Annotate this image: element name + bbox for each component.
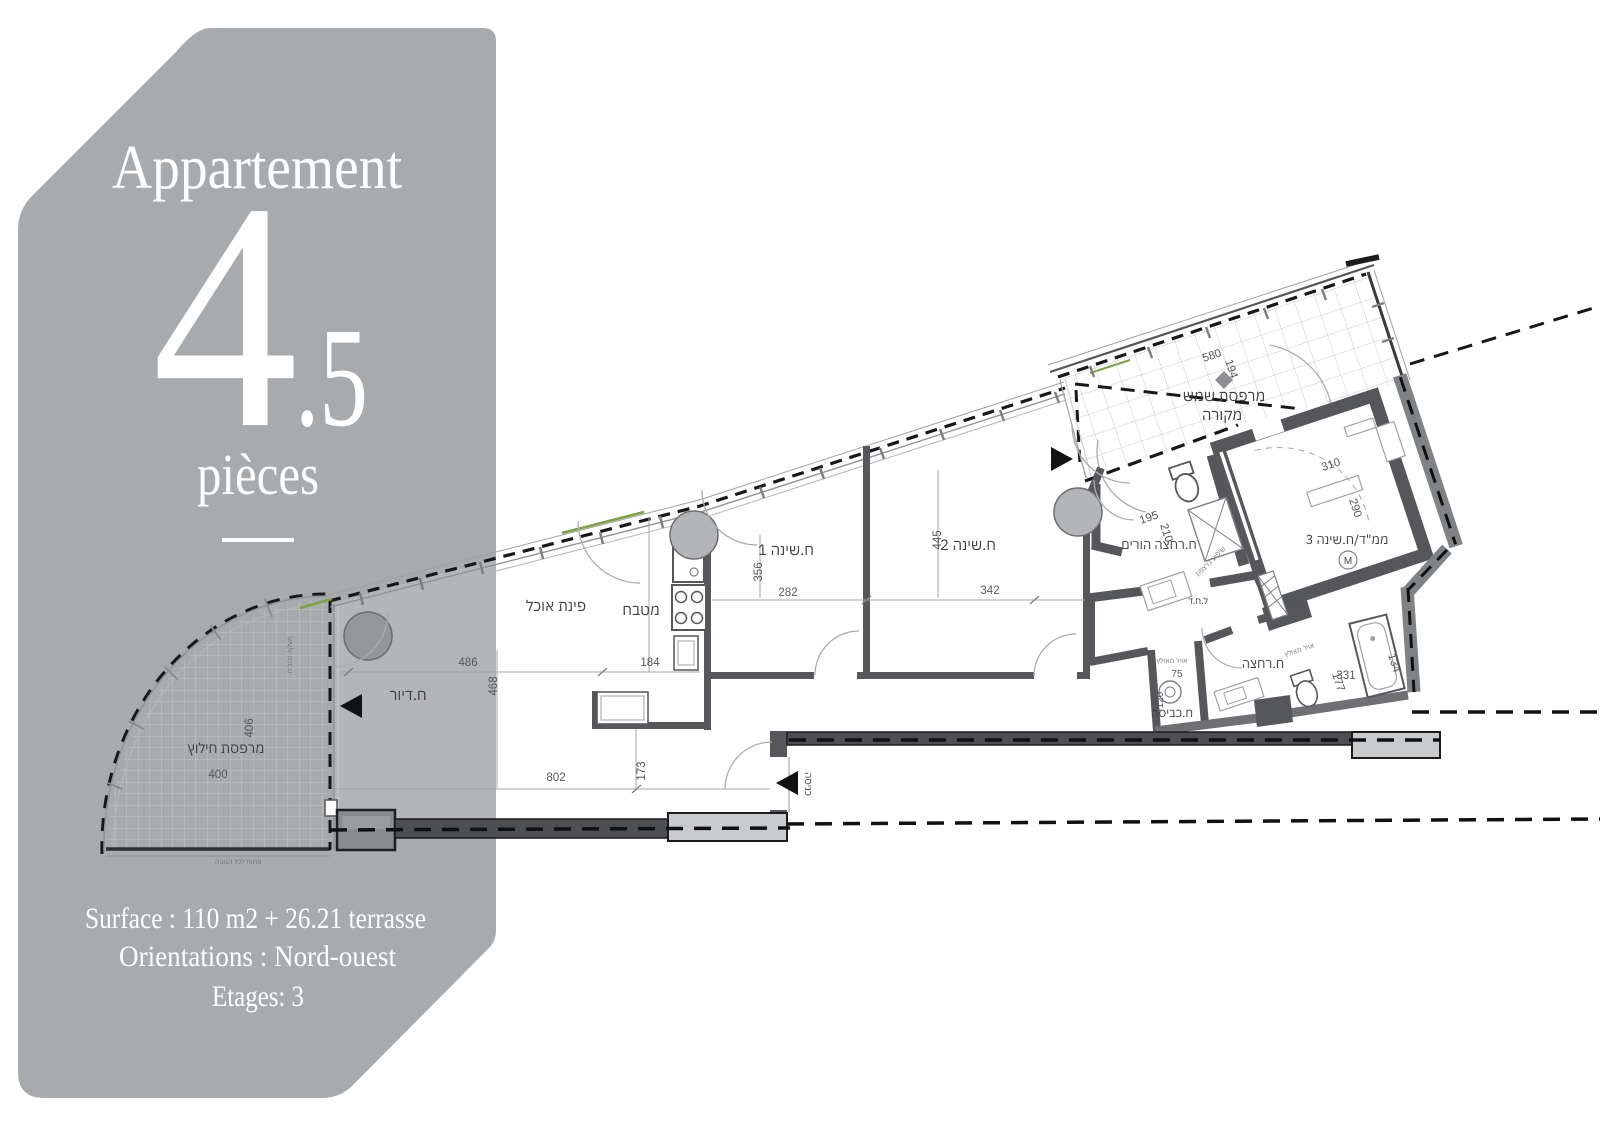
svg-text:Orientations : Nord-ouest: Orientations : Nord-ouest xyxy=(119,940,397,973)
svg-text:400: 400 xyxy=(208,769,227,781)
svg-text:342: 342 xyxy=(980,585,999,597)
svg-text:Surface : 110 m2 + 26.21 terra: Surface : 110 m2 + 26.21 terrasse xyxy=(85,902,426,935)
svg-text:282: 282 xyxy=(778,587,797,599)
svg-text:75: 75 xyxy=(1171,669,1183,680)
svg-text:M: M xyxy=(1344,556,1352,567)
svg-text:pièces: pièces xyxy=(197,442,319,507)
svg-text:.5: .5 xyxy=(295,298,368,456)
svg-text:120: 120 xyxy=(1155,691,1166,708)
svg-text:406: 406 xyxy=(244,718,256,737)
svg-text:356: 356 xyxy=(753,562,765,581)
svg-text:184: 184 xyxy=(640,657,660,669)
svg-text:468: 468 xyxy=(488,676,500,695)
svg-text:Etages: 3: Etages: 3 xyxy=(212,980,304,1013)
svg-text:486: 486 xyxy=(458,657,477,669)
svg-text:802: 802 xyxy=(546,772,565,784)
svg-text:445: 445 xyxy=(932,530,944,549)
svg-text:173: 173 xyxy=(636,761,648,780)
